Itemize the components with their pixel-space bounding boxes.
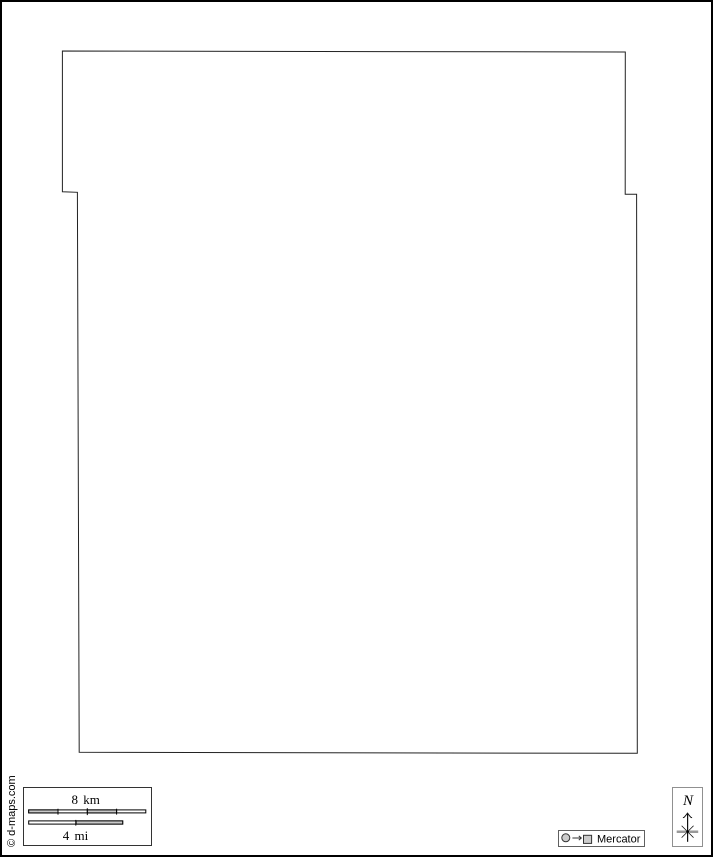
svg-text:Mercator: Mercator xyxy=(597,834,641,846)
